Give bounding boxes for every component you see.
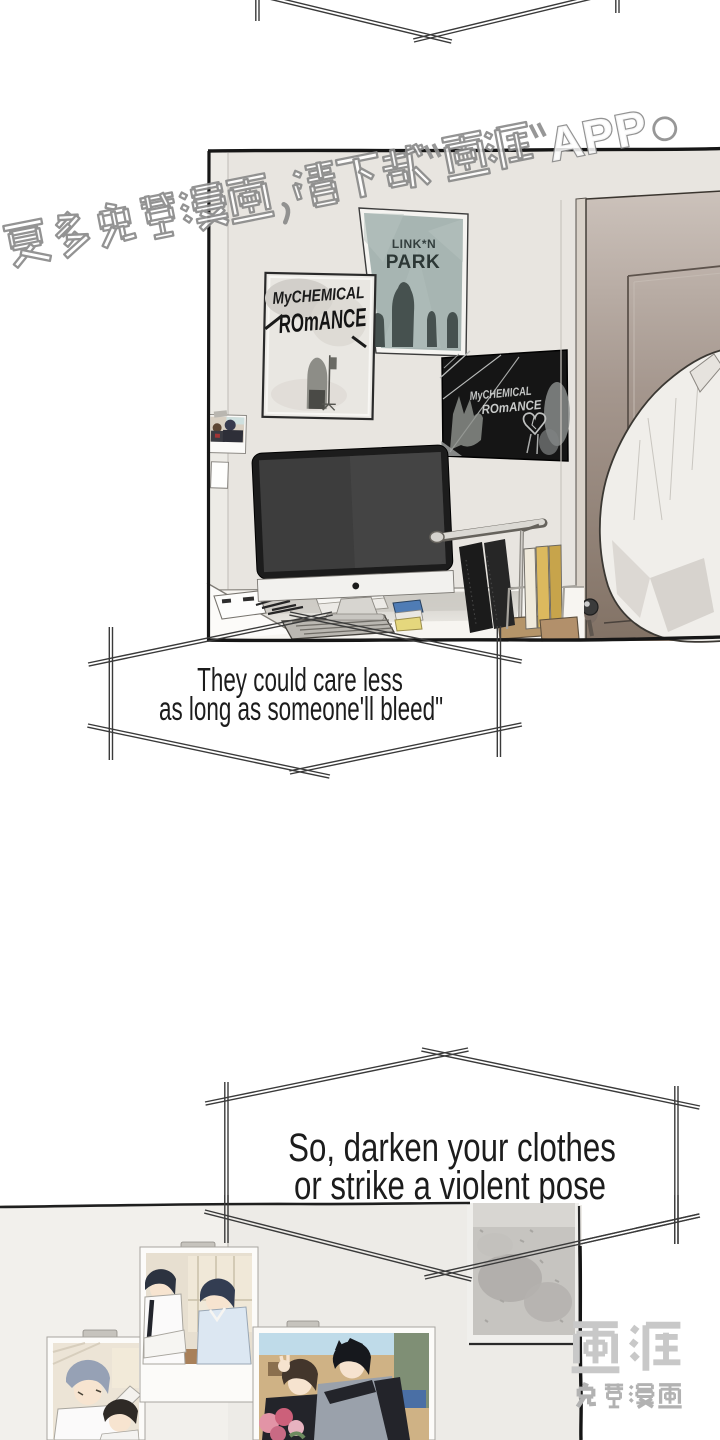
svg-text:LINK*N: LINK*N [392,237,436,251]
svg-text:or strike a violent pose: or strike a violent pose [294,1163,606,1208]
svg-text:as long as someone'll bleed": as long as someone'll bleed" [159,690,443,727]
svg-text:PARK: PARK [386,252,440,273]
